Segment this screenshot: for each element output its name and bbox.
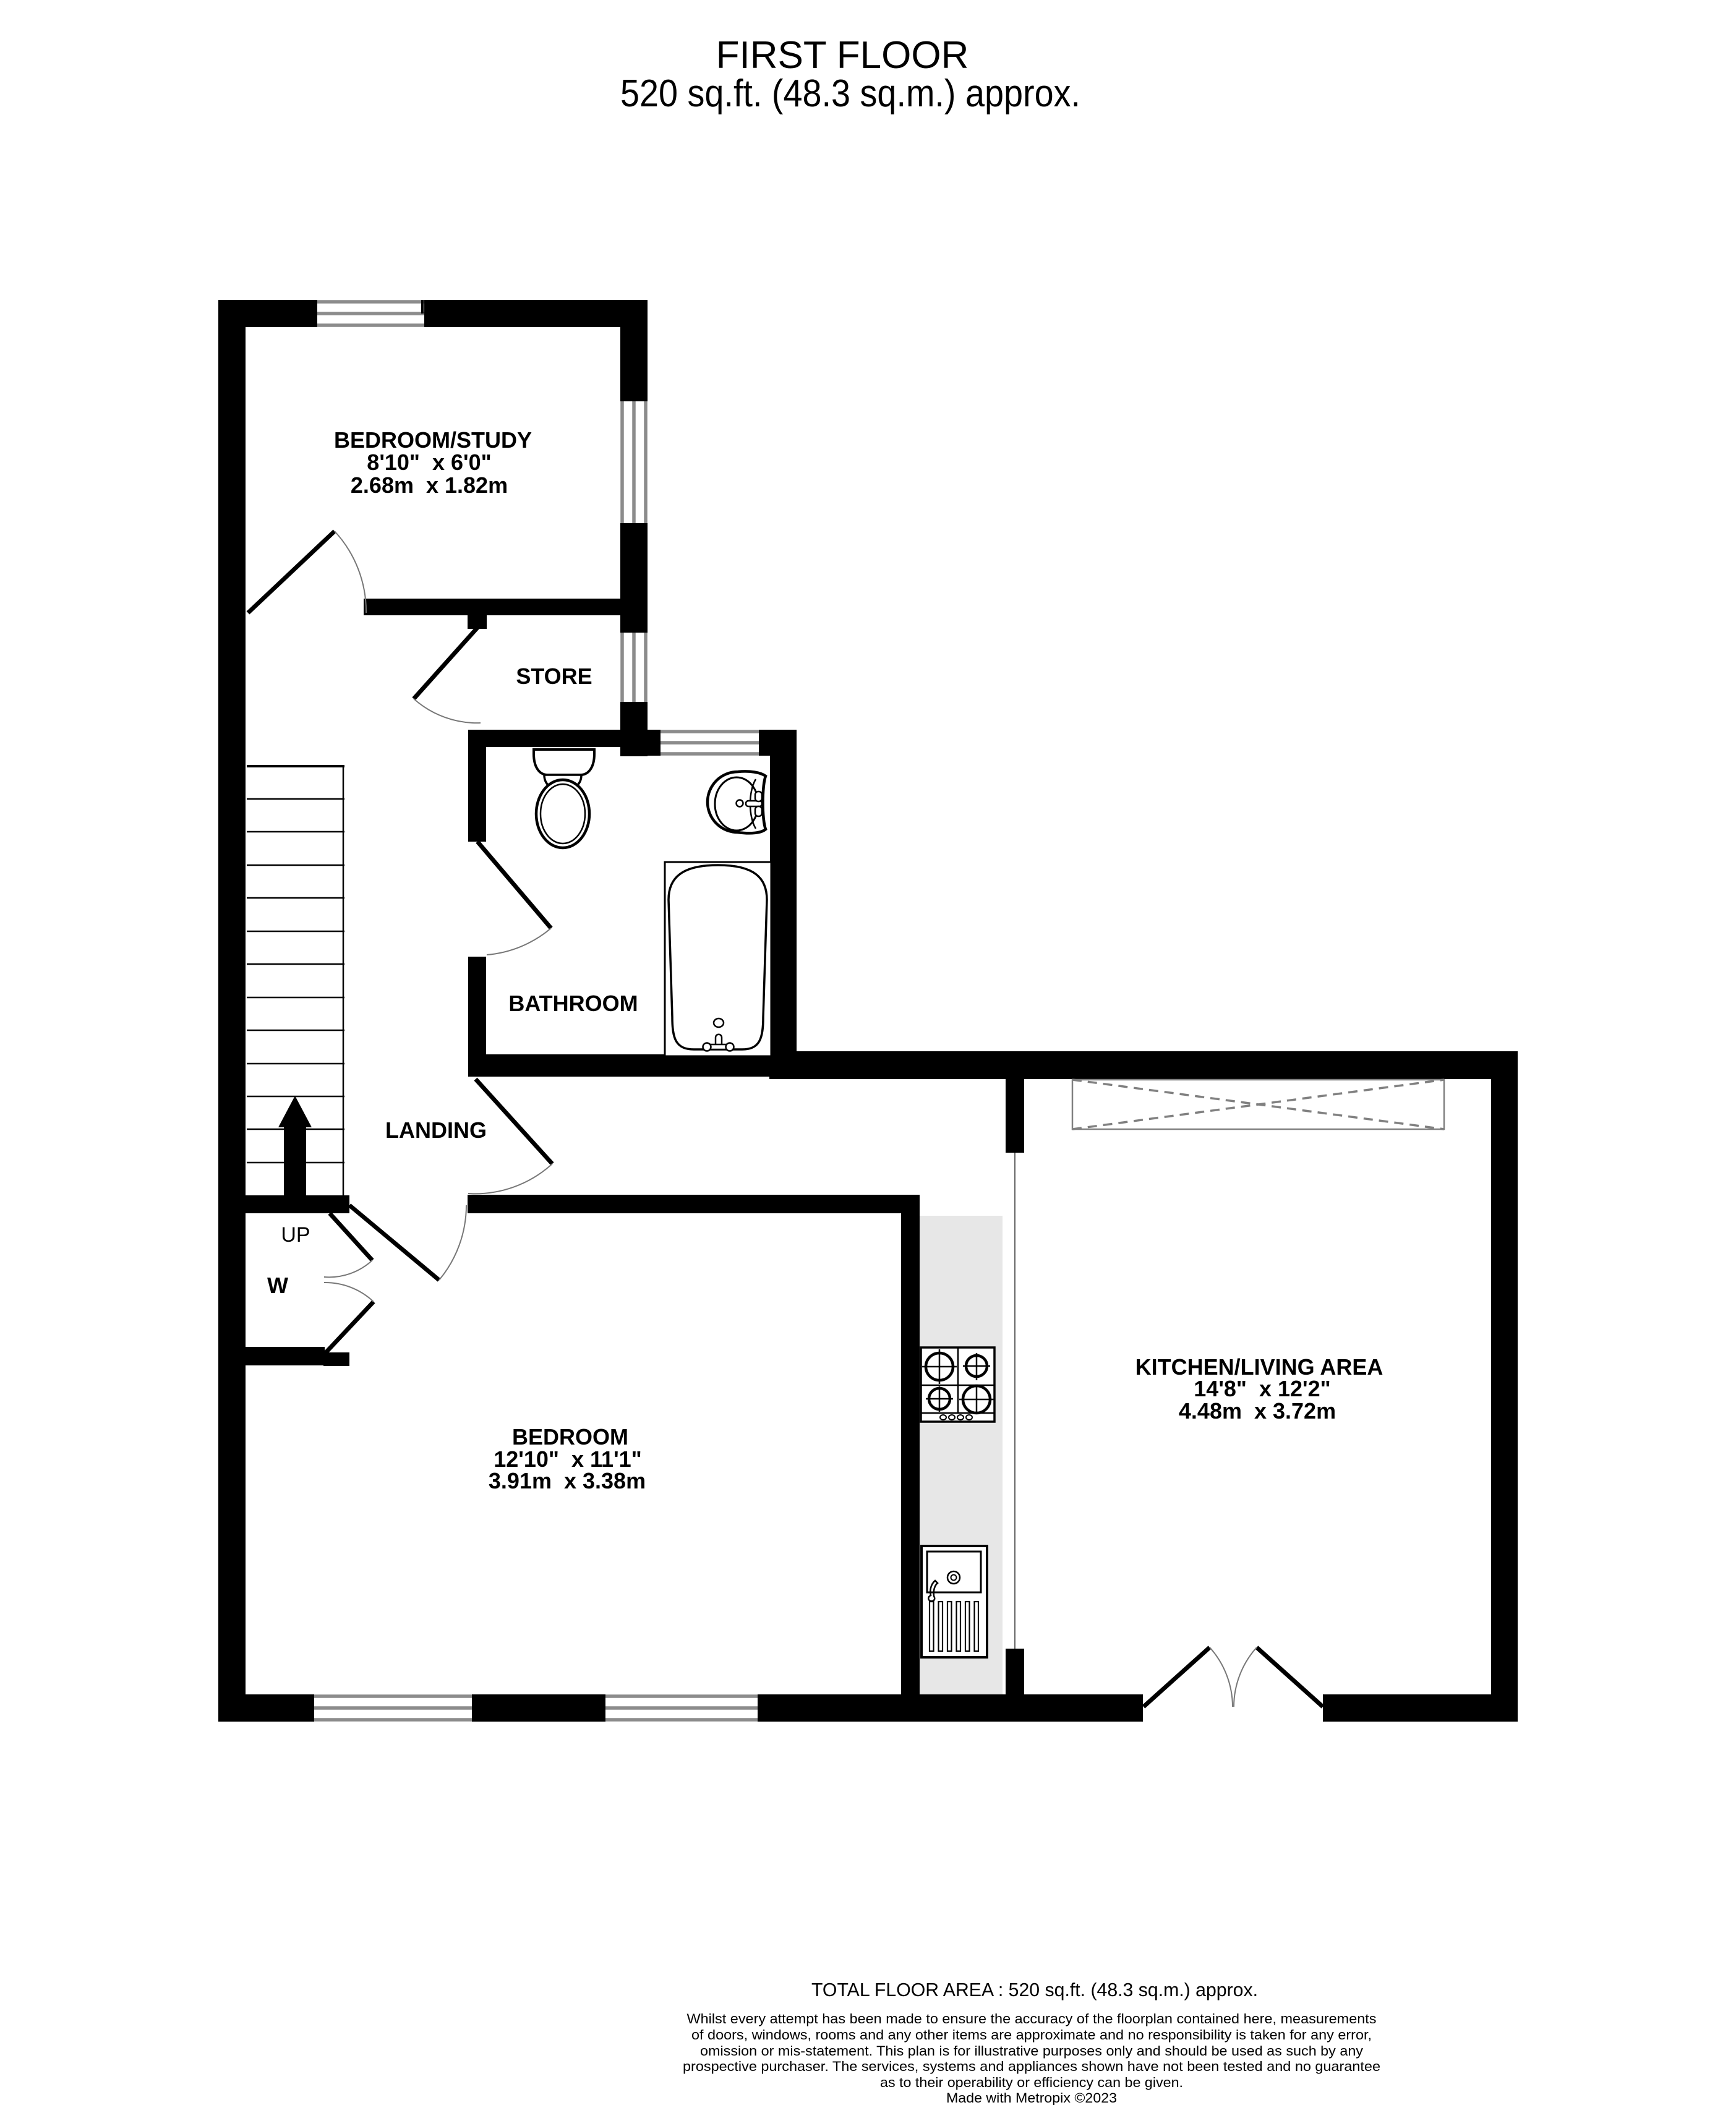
svg-text:520 sq.ft. (48.3 sq.m.) approx: 520 sq.ft. (48.3 sq.m.) approx. [620, 72, 1080, 115]
svg-text:14'8" x 12'2": 14'8" x 12'2" [1194, 1376, 1330, 1401]
svg-text:W: W [267, 1273, 288, 1298]
svg-text:LANDING: LANDING [385, 1117, 487, 1143]
svg-text:2.68m x 1.82m: 2.68m x 1.82m [351, 472, 508, 498]
svg-text:FIRST FLOOR: FIRST FLOOR [716, 34, 969, 77]
svg-text:TOTAL FLOOR AREA : 520 sq.ft.: TOTAL FLOOR AREA : 520 sq.ft. (48.3 sq.m… [811, 1979, 1258, 2000]
svg-text:Made with Metropix ©2023: Made with Metropix ©2023 [946, 2090, 1117, 2105]
svg-text:BEDROOM: BEDROOM [512, 1424, 628, 1450]
svg-text:UP: UP [281, 1223, 310, 1247]
svg-text:as to their operability or eff: as to their operability or efficiency ca… [880, 2075, 1183, 2090]
svg-text:BATHROOM: BATHROOM [508, 991, 638, 1016]
svg-text:4.48m x 3.72m: 4.48m x 3.72m [1179, 1398, 1336, 1424]
svg-text:3.91m x 3.38m: 3.91m x 3.38m [489, 1468, 646, 1493]
svg-text:of doors, windows, rooms and a: of doors, windows, rooms and any other i… [691, 2027, 1372, 2043]
svg-text:prospective purchaser. The ser: prospective purchaser. The services, sys… [683, 2059, 1380, 2074]
svg-text:8'10" x 6'0": 8'10" x 6'0" [367, 450, 491, 475]
svg-text:Whilst every attempt has been: Whilst every attempt has been made to en… [687, 2011, 1377, 2026]
svg-text:BEDROOM/STUDY: BEDROOM/STUDY [334, 427, 532, 453]
svg-text:omission or mis-statement. Thi: omission or mis-statement. This plan is … [700, 2043, 1363, 2059]
svg-text:STORE: STORE [516, 664, 592, 689]
